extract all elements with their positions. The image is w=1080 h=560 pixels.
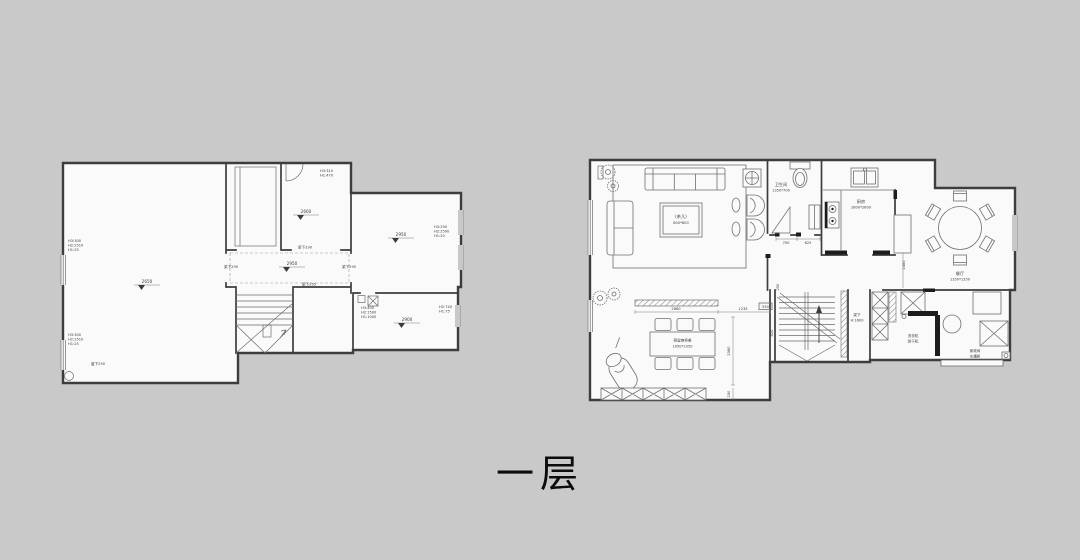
counter-return (894, 215, 911, 253)
svg-text:2800*2600: 2800*2600 (851, 206, 872, 210)
bath-cabinet (809, 205, 820, 229)
svg-text:烘干机: 烘干机 (908, 339, 919, 344)
svg-text:H:1600: H:1600 (850, 319, 864, 323)
svg-text:800*800: 800*800 (673, 221, 689, 225)
sofa-three-seat (645, 168, 725, 190)
sink (851, 168, 878, 187)
svg-text:预留麻将桌: 预留麻将桌 (674, 338, 692, 343)
floorplan-sheet: 2650 2660 2950 2950 2900 H3:300 H2:2510 (0, 0, 1080, 560)
svg-text:H3:400: H3:400 (361, 306, 375, 310)
wardrobe-row (601, 388, 706, 400)
svg-text:H1:470: H1:470 (320, 173, 334, 177)
svg-text:H2:740: H2:740 (439, 305, 453, 309)
svg-text:厨房: 厨房 (857, 198, 865, 205)
svg-text:洗衣机: 洗衣机 (908, 333, 919, 338)
svg-text:1235: 1235 (738, 307, 747, 311)
svg-text:梁下295: 梁下295 (342, 264, 356, 269)
svg-text:H2:2510: H2:2510 (68, 243, 84, 247)
left-floorplan: 2650 2660 2950 2950 2900 H3:300 H2:2510 (58, 150, 473, 395)
svg-text:家政间: 家政间 (970, 348, 981, 353)
svg-text:820: 820 (770, 329, 774, 337)
stove (825, 202, 839, 228)
tall-cabinet (872, 292, 888, 340)
svg-text:2900: 2900 (402, 317, 413, 322)
svg-text:H1:20: H1:20 (434, 234, 445, 238)
svg-text:H1:75: H1:75 (439, 309, 450, 313)
mahjong-table: 预留麻将桌 1050*1050 (650, 332, 715, 356)
svg-text:2660: 2660 (671, 307, 681, 311)
svg-text:2950: 2950 (396, 232, 407, 237)
svg-text:H1:25: H1:25 (68, 342, 79, 346)
armchair (747, 195, 765, 216)
wall-black (908, 311, 938, 316)
coffee-table: (茶几) 800*800 (660, 203, 702, 237)
svg-text:1350*700: 1350*700 (772, 189, 791, 193)
svg-text:550: 550 (762, 305, 770, 309)
svg-text:625: 625 (805, 241, 812, 245)
svg-text:(茶几): (茶几) (675, 213, 687, 220)
right-floorplan: (茶几) 800*800 卫生间 1350*700 700 625 (583, 145, 1022, 410)
svg-text:水槽柜: 水槽柜 (970, 354, 981, 359)
svg-text:H3:300: H3:300 (68, 333, 82, 337)
armchair (747, 219, 764, 240)
svg-text:250: 250 (776, 283, 780, 291)
svg-text:2650: 2650 (142, 279, 153, 284)
svg-text:梁下295: 梁下295 (302, 282, 316, 287)
sofa-bench (607, 201, 633, 255)
floor-title: 一层 (430, 443, 650, 498)
svg-text:1485: 1485 (902, 260, 906, 269)
svg-text:2660: 2660 (301, 209, 312, 214)
svg-text:餐厅: 餐厅 (956, 270, 964, 277)
svg-text:H2:1500: H2:1500 (361, 310, 377, 314)
svg-text:2950: 2950 (287, 261, 298, 266)
dining-table (939, 207, 982, 250)
svg-text:卫生间: 卫生间 (775, 181, 788, 188)
island-box (973, 292, 1001, 314)
svg-text:H3:300: H3:300 (68, 239, 82, 243)
cabinet-strip (889, 292, 896, 322)
svg-text:2580: 2580 (727, 346, 731, 356)
svg-text:梁下290: 梁下290 (298, 245, 313, 250)
svg-text:H2:2500: H2:2500 (434, 229, 450, 233)
svg-text:梁下: 梁下 (853, 312, 861, 317)
wall-black (935, 315, 940, 356)
x-cabinet-large (980, 321, 1008, 346)
svg-text:H3:310: H3:310 (320, 169, 334, 173)
svg-text:H1:25: H1:25 (68, 248, 79, 252)
svg-text:250: 250 (727, 390, 731, 398)
threshold-step (941, 360, 1003, 366)
door-box (1002, 352, 1010, 359)
svg-text:H1:1000: H1:1000 (361, 315, 377, 319)
tv-console (635, 300, 718, 306)
svg-text:1350*1350: 1350*1350 (950, 278, 971, 282)
svg-text:700: 700 (783, 241, 791, 245)
svg-text:梁下290: 梁下290 (224, 264, 239, 269)
svg-text:H2:2510: H2:2510 (68, 337, 84, 341)
side-table (743, 169, 761, 187)
svg-text:H3:290: H3:290 (434, 225, 448, 229)
svg-text:窗下250: 窗下250 (91, 361, 106, 366)
svg-text:1050*1050: 1050*1050 (672, 345, 693, 349)
